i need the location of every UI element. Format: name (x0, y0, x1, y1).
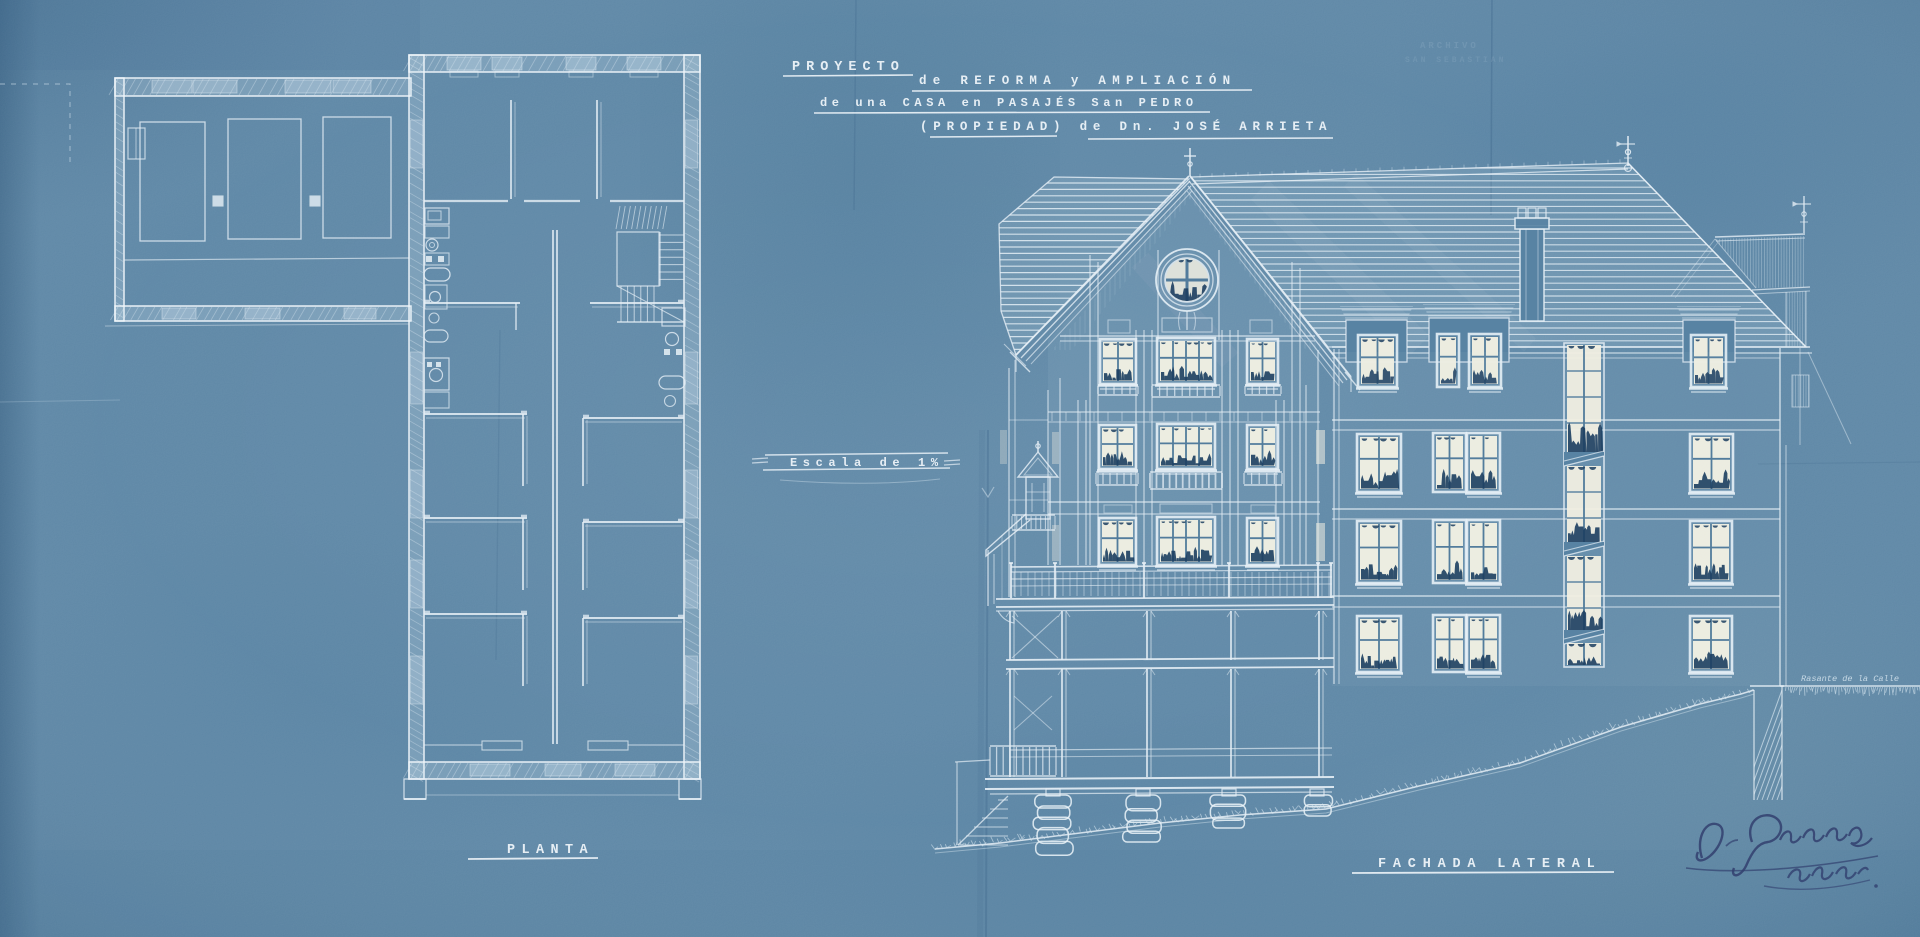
svg-text:PROYECTO: PROYECTO (792, 60, 905, 75)
svg-text:Rasante de la Calle: Rasante de la Calle (1801, 674, 1899, 684)
svg-text:de REFORMA y AMPLIACIÓN: de REFORMA y AMPLIACIÓN (919, 73, 1236, 88)
svg-text:de una CASA en PASAJÉS San PED: de una CASA en PASAJÉS San PEDRO (820, 95, 1198, 110)
svg-text:(PROPIEDAD) de Dn. JOSÉ ARRIET: (PROPIEDAD) de Dn. JOSÉ ARRIETA (920, 119, 1332, 134)
svg-text:Escala de 1%: Escala de 1% (790, 456, 944, 470)
svg-text:SAN SEBASTIAN: SAN SEBASTIAN (1405, 56, 1506, 65)
svg-text:FACHADA LATERAL: FACHADA LATERAL (1378, 857, 1602, 872)
svg-text:PLANTA: PLANTA (507, 843, 594, 858)
svg-text:ARCHIVO: ARCHIVO (1420, 41, 1479, 51)
